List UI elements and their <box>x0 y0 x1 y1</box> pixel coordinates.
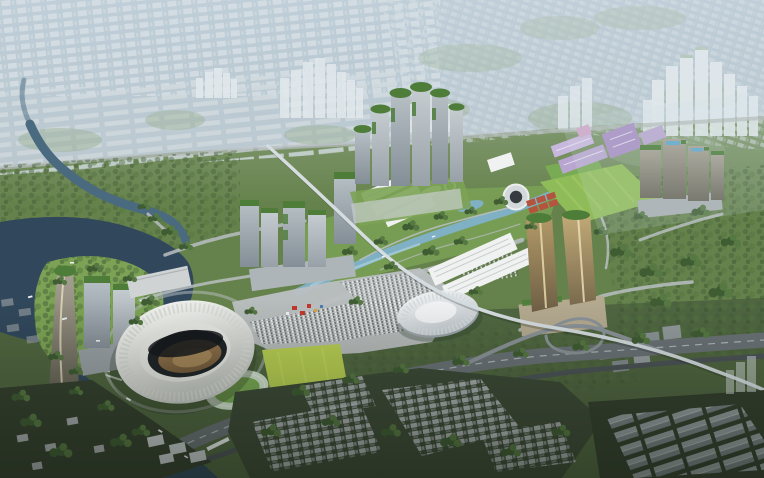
aerial-rendering: Aerial rendering of a riverside sports-c… <box>0 0 764 478</box>
masterplan-scene: Aerial rendering of a riverside sports-c… <box>0 0 764 478</box>
twisted-tower-crown <box>54 266 76 277</box>
small-stadium-bowl <box>510 191 522 203</box>
bottom-vignette <box>0 300 764 478</box>
